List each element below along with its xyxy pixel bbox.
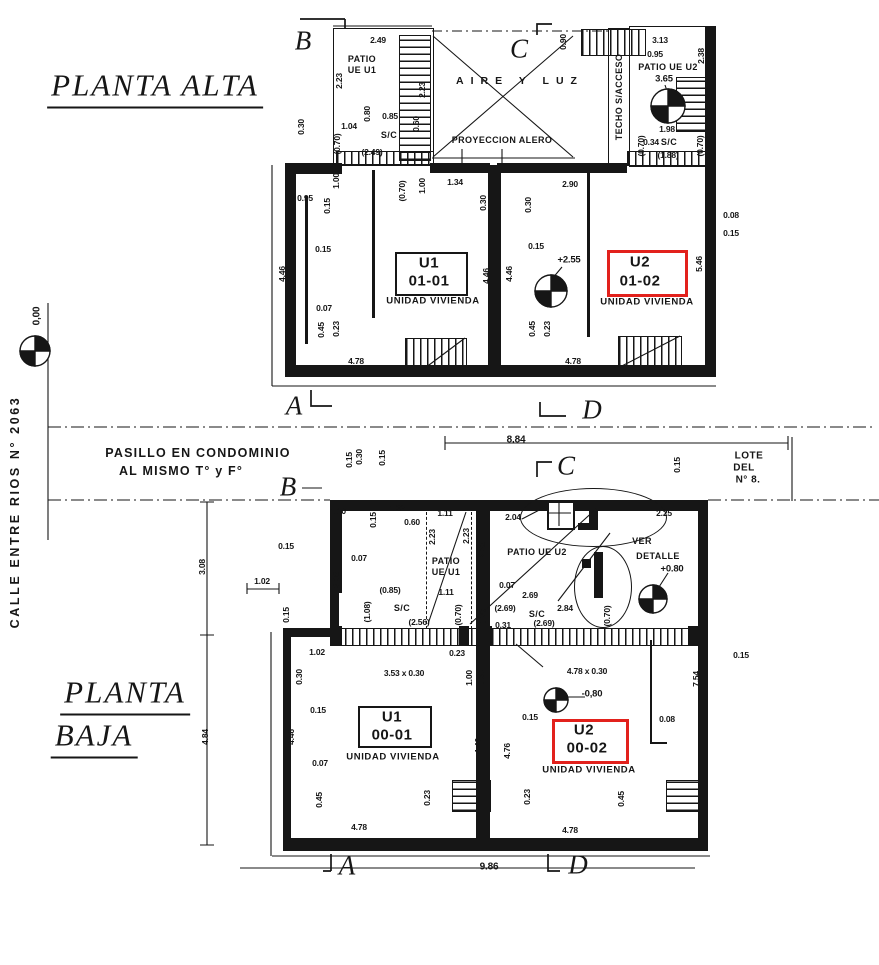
dimension-label: 0.23 (422, 790, 432, 806)
dimension-label: 0.45 (316, 322, 326, 338)
dimension-label: 1.00 (331, 173, 341, 189)
street-label: CALLE ENTRE RIOS N° 2063 (8, 396, 22, 629)
benchmark-icon (535, 275, 567, 307)
area-label: UE U1 (432, 567, 461, 577)
detail-note: VER (632, 536, 652, 546)
room-id-highlighted: 01-02 (620, 273, 661, 290)
section-letter-A: A (339, 851, 356, 882)
dimension-label: 0.60 (404, 517, 420, 527)
dimension-label: 0.15 (281, 607, 291, 623)
dimension-label: (0.70) (695, 135, 705, 156)
room-type-label: UNIDAD VIVIENDA (600, 297, 693, 308)
room-id-highlighted: U2 (630, 254, 650, 271)
dimension-label: 0.31 (495, 620, 511, 630)
title-planta-alta: PLANTA ALTA (47, 68, 263, 109)
dimension-label: 0.15 (278, 541, 294, 551)
dimension-label: (0.70) (332, 133, 342, 154)
dimension-label: 4.46 (277, 266, 287, 282)
dimension-label: 0.90 (558, 34, 568, 50)
section-letter-C: C (510, 34, 528, 65)
dimension-label: 0.30 (523, 197, 533, 213)
dimension-label: 2.23 (461, 528, 471, 544)
dimension-label: 0.45 (527, 321, 537, 337)
area-label-aire-y-luz: AIRE Y LUZ (456, 75, 584, 87)
dimension-label: 2.04 (505, 512, 521, 522)
level-label: 0,00 (32, 307, 43, 326)
dimension-label: 4.78 (351, 822, 367, 832)
dimension-label: (1.08) (362, 601, 372, 622)
dimension-label: 0.95 (647, 49, 663, 59)
section-letter-B: B (295, 26, 312, 57)
dimension-label: (2.69) (494, 603, 515, 613)
dimension-label: 1.11 (438, 587, 453, 597)
lot-label: N° 8. (736, 475, 761, 486)
section-letter-D: D (582, 395, 602, 426)
pasillo-label: AL MISMO T° y F° (119, 464, 243, 478)
room-type-label: UNIDAD VIVIENDA (542, 765, 635, 776)
room-id: 01-01 (409, 273, 450, 290)
benchmark-icon (20, 336, 50, 366)
dimension-label: (0.70) (602, 605, 612, 626)
dimension-label: (2.56) (408, 617, 429, 627)
dimension-label: 1.02 (254, 576, 270, 586)
area-label: PATIO (348, 54, 376, 64)
dimension-label: 0.15 (315, 244, 331, 254)
dimension-label: (0.85) (379, 585, 400, 595)
dimension-label: 0.07 (316, 303, 332, 313)
dimension-label: 1.10 (330, 506, 346, 516)
dimension-label: 1.34 (447, 177, 463, 187)
dimension-label: 1.02 (309, 647, 325, 657)
dimension-label: 2.69 (522, 590, 538, 600)
area-label: PATIO UE U2 (638, 62, 698, 72)
dimension-label: 4.78 (562, 825, 578, 835)
dimension-label: 0.23 (542, 321, 552, 337)
dimension-label: 0.80 (362, 106, 372, 122)
dimension-label: 4.46 (473, 738, 483, 754)
area-label: S/C (661, 137, 677, 147)
dimension-label: 0.15 (723, 228, 739, 238)
dimension-label: 4.46 (481, 268, 491, 284)
dimension-label: 3.08 (331, 572, 341, 588)
dimension-label: 2.23 (417, 82, 427, 98)
level-label: +2.55 (557, 255, 580, 266)
title-planta-baja-line1: PLANTA (60, 675, 190, 716)
dimension-label: 8.84 (507, 435, 526, 446)
dimension-label: 0.15 (322, 198, 332, 214)
dimension-label: 0.23 (522, 789, 532, 805)
room-id-highlighted: 00-02 (567, 740, 608, 757)
dimension-label: 9.86 (480, 862, 499, 873)
area-label: PROYECCION ALERO (452, 135, 553, 145)
room-id: 00-01 (372, 727, 413, 744)
area-label: S/C (394, 603, 410, 613)
level-label: 3.65 (655, 74, 673, 85)
room-type-label: UNIDAD VIVIENDA (346, 752, 439, 763)
dimension-label: 0.23 (331, 321, 341, 337)
room-id: U1 (382, 709, 402, 726)
dimension-label: 0.60 (411, 116, 421, 132)
section-letter-C: C (557, 451, 575, 482)
dimension-label: 1.32 (389, 503, 405, 513)
dimension-label: 0.30 (476, 670, 486, 686)
dimension-label: (0.70) (397, 180, 407, 201)
section-letter-D: D (568, 850, 588, 881)
level-label: +0.80 (660, 564, 683, 575)
dimension-label: 4.46 (286, 729, 296, 745)
dimension-label: 1.00 (464, 670, 474, 686)
dimension-label: 4.84 (200, 729, 210, 745)
dimension-label: 4.78 x 0.30 (567, 666, 607, 676)
dimension-label: 2.23 (334, 73, 344, 89)
dimension-label: 0.45 (314, 792, 324, 808)
dimension-label: 0.15 (377, 450, 387, 466)
level-label: -0,80 (582, 689, 603, 700)
dimension-label: 2.38 (696, 48, 706, 64)
dimension-label: 1.04 (341, 121, 357, 131)
dimension-label: 0.70 (478, 609, 488, 625)
room-type-label: UNIDAD VIVIENDA (386, 296, 479, 307)
dimension-label: 3.13 (652, 35, 668, 45)
lot-label: DEL (733, 463, 755, 474)
dimension-label: 0.15 (522, 712, 538, 722)
dimension-label: 0.34 (643, 137, 659, 147)
floor-plan-sheet: PLANTA ALTAPLANTABAJACALLE ENTRE RIOS N°… (0, 0, 879, 965)
area-label: S/C (381, 130, 397, 140)
dimension-label: 1.11 (437, 508, 452, 518)
dimension-label: 2.49 (370, 35, 386, 45)
dimension-label: 0.15 (310, 705, 326, 715)
dimension-label: 0.15 (528, 241, 544, 251)
dimension-label: 0.45 (616, 791, 626, 807)
dimension-label: 5.46 (694, 256, 704, 272)
dimension-label: 0.30 (354, 449, 364, 465)
room-id: U1 (419, 255, 439, 272)
dimension-label: 0.07 (499, 580, 515, 590)
dimension-label: 0.07 (351, 553, 367, 563)
dimension-label: (0.70) (453, 604, 463, 625)
dimension-label: 4.76 (502, 743, 512, 759)
area-label: PATIO (432, 556, 460, 566)
room-id-highlighted: U2 (574, 722, 594, 739)
dimension-label: 2.84 (557, 603, 573, 613)
dimension-label: 2.90 (562, 179, 578, 189)
dimension-label: 1.98 (659, 124, 675, 134)
area-label: TECHO S/ACCESO (614, 54, 624, 141)
dimension-label: 0.08 (659, 714, 675, 724)
dimension-label: 2.23 (427, 529, 437, 545)
dimension-label: 0.15 (672, 457, 682, 473)
dimension-label: 0.15 (733, 650, 749, 660)
lot-label: LOTE (735, 451, 764, 462)
pasillo-label: PASILLO EN CONDOMINIO (105, 446, 290, 460)
dimension-label: 0.30 (294, 669, 304, 685)
dimension-label: 2.23 (477, 542, 487, 558)
section-letter-B: B (280, 472, 297, 503)
dimension-label: (2.49) (361, 147, 382, 157)
benchmark-icon (544, 688, 568, 712)
dimension-label: 3.08 (197, 559, 207, 575)
detail-note: DETALLE (636, 551, 680, 561)
section-letter-A: A (286, 391, 303, 422)
dimension-label: 1.00 (417, 178, 427, 194)
dimension-label: 0.23 (449, 648, 465, 658)
dimension-label: 0.30 (296, 119, 306, 135)
dimension-label: 3.53 x 0.30 (384, 668, 424, 678)
area-label: PATIO UE U2 (507, 547, 567, 557)
dimension-label: 0.85 (382, 111, 398, 121)
dimension-label: (1.88) (657, 150, 678, 160)
dimension-label: 4.78 (348, 356, 364, 366)
area-label: UE U1 (348, 65, 377, 75)
dimension-label: (2.69) (533, 618, 554, 628)
dimension-label: 0.07 (312, 758, 328, 768)
benchmark-icon (639, 585, 667, 613)
dimension-label: 0.15 (368, 512, 378, 528)
dimension-label: 4.46 (504, 266, 514, 282)
dimension-label: 0.15 (344, 452, 354, 468)
dimension-label: 0.95 (297, 193, 313, 203)
dimension-label: 2.25 (656, 508, 672, 518)
dimension-label: 4.78 (565, 356, 581, 366)
dimension-label: 0.30 (478, 195, 488, 211)
dimension-label: 0.08 (723, 210, 739, 220)
dimension-label: 7.54 (691, 671, 701, 687)
title-planta-baja-line2: BAJA (51, 718, 138, 759)
benchmark-icon (651, 89, 685, 123)
